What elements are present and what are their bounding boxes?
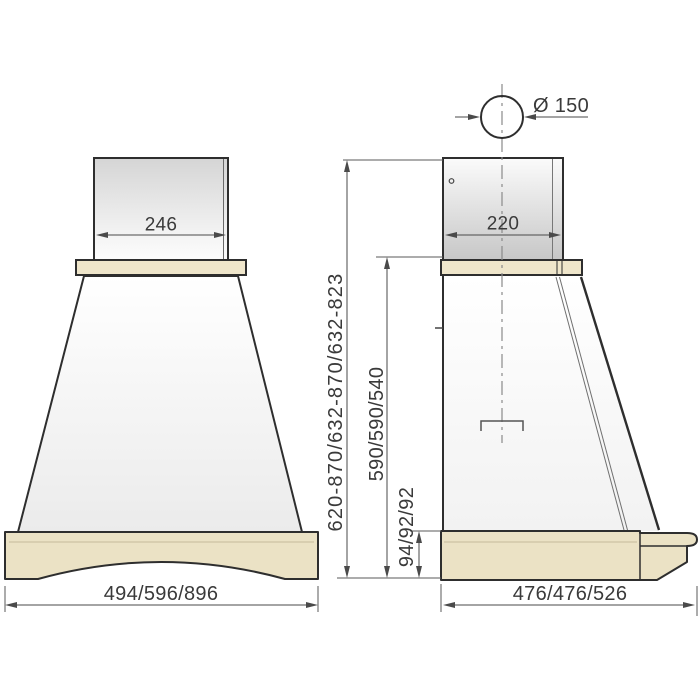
arrow-total-top — [344, 160, 350, 172]
front-chimney — [94, 158, 228, 260]
side-chimney-depth-label: 220 — [487, 215, 520, 234]
front-shelf — [76, 260, 246, 275]
side-chimney — [443, 158, 563, 260]
front-overall-width-label: 494/596/896 — [104, 584, 219, 604]
arrow-body-top — [384, 257, 390, 269]
side-view — [435, 84, 697, 580]
side-canopy — [443, 276, 659, 531]
arrow-side-depth-left — [443, 602, 455, 608]
arrow-base-bottom — [416, 566, 422, 578]
technical-drawing-canvas: 246 220 Ø 150 620-870/632-870/632-823 59… — [0, 0, 700, 700]
duct-arrow-left — [468, 114, 480, 120]
side-base — [441, 531, 697, 580]
arrow-side-depth-right — [683, 602, 695, 608]
total-height-label: 620-870/632-870/632-823 — [326, 273, 346, 532]
arrow-body-bottom — [384, 566, 390, 578]
side-shelf — [441, 260, 582, 275]
base-height-label: 94/92/92 — [397, 487, 417, 567]
arrow-front-width-left — [5, 602, 17, 608]
front-base — [5, 532, 318, 579]
front-chimney-width-label: 246 — [145, 216, 178, 235]
front-canopy — [18, 276, 302, 532]
arrow-front-width-right — [306, 602, 318, 608]
side-overall-depth-label: 476/476/526 — [513, 584, 628, 604]
hood-body-height-label: 590/590/540 — [367, 367, 387, 482]
arrow-total-bottom — [344, 566, 350, 578]
duct-diameter-label: Ø 150 — [533, 96, 589, 116]
